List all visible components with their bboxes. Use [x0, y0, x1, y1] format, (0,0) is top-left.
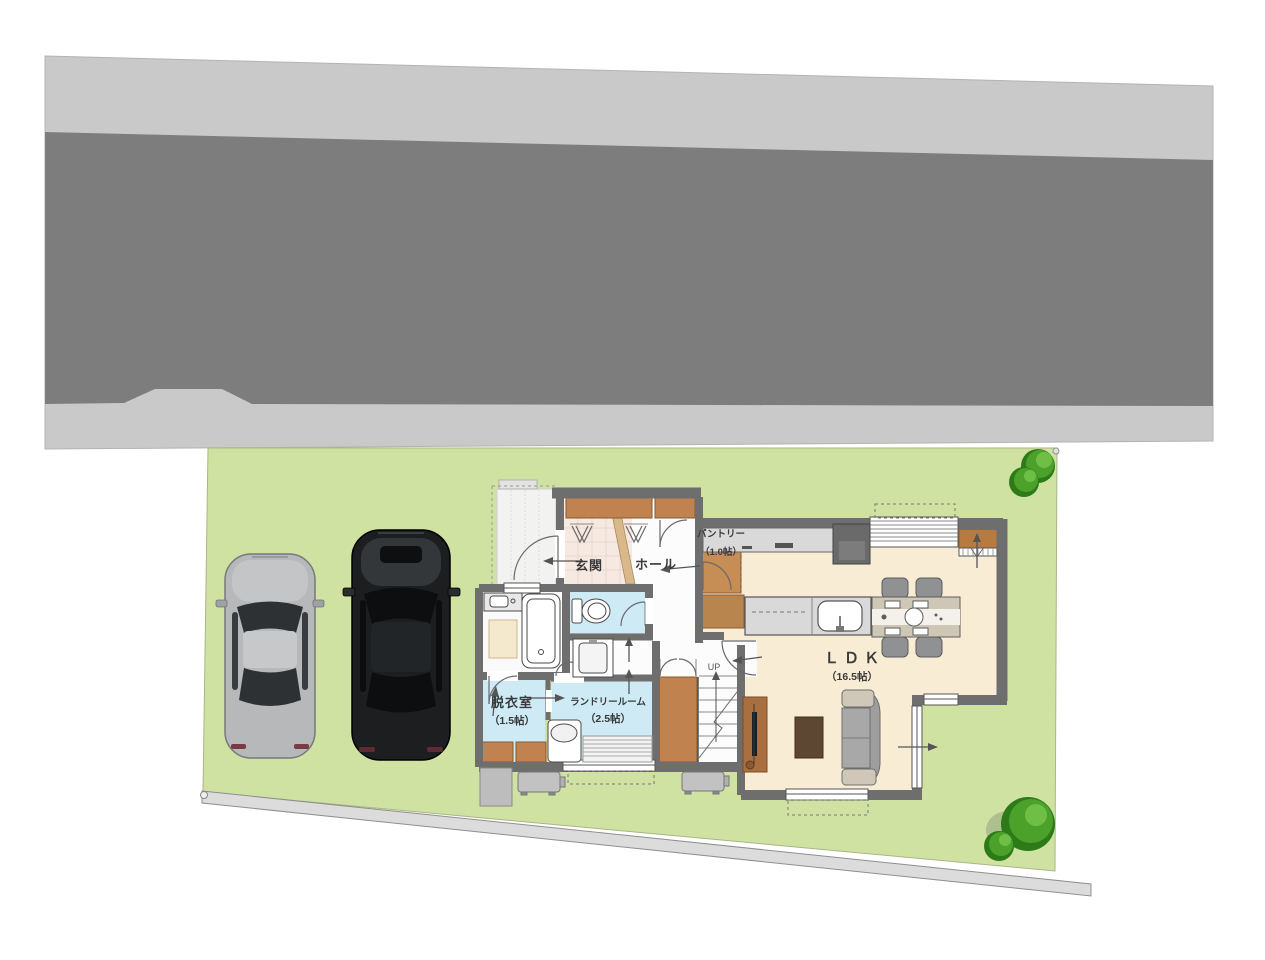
kitchen-island: [745, 597, 871, 635]
coffee-table: [795, 717, 823, 758]
pantry-size-label: （1.0帖）: [700, 546, 742, 558]
silver-car: [216, 554, 324, 758]
pantry-label: パントリー: [697, 528, 745, 540]
floor-plan-drawing: 玄関 ホール パントリー （1.0帖） ＬＤＫ （16.5帖） 脱衣室 （1.5…: [0, 0, 1265, 960]
genkan-label: 玄関: [575, 558, 603, 573]
road: [45, 56, 1213, 449]
shoe-closet: [566, 497, 652, 518]
laundry-deck-slats: [583, 736, 652, 762]
bath-mat: [489, 620, 517, 658]
black-car: [343, 530, 460, 760]
dining-chair: [882, 637, 908, 657]
dining-chair: [916, 578, 942, 598]
laundry-room-label: ランドリールーム: [570, 697, 646, 708]
dressing-room-size-label: （1.5帖）: [489, 714, 535, 727]
sofa: [842, 690, 880, 785]
dressing-room-label: 脱衣室: [491, 695, 533, 710]
dressing-cabinet: [482, 742, 513, 762]
toilet: [572, 599, 610, 623]
speaker: [746, 761, 754, 769]
fence-end-cap: [201, 792, 208, 799]
bathtub: [522, 594, 560, 668]
ldk-label: ＬＤＫ: [824, 650, 884, 667]
bath-window: [504, 583, 540, 593]
kitchen-louver-window: [870, 517, 958, 547]
ac-outdoor-unit: [518, 772, 565, 795]
hall-label: ホール: [635, 557, 677, 572]
bath-counter: [484, 593, 522, 611]
ldk-bottom-window: [786, 789, 868, 800]
entrance-porch: [492, 480, 556, 585]
ldk-size-label: （16.5帖）: [826, 670, 878, 683]
stairs-up-label: UP: [708, 662, 721, 672]
bathroom: [484, 593, 560, 668]
vanity: [573, 639, 613, 677]
utility-pad: [480, 768, 512, 806]
tv-board: [743, 697, 767, 772]
road-pavement: [45, 132, 1213, 406]
dressing-cabinet: [516, 742, 546, 762]
dining-chair: [882, 578, 908, 598]
kitchen-side-cabinet: [701, 595, 744, 628]
washing-machine: [548, 720, 581, 762]
ldk-corner-window: [924, 694, 958, 705]
laundry-room-size-label: （2.5帖）: [585, 712, 631, 725]
site-plan-canvas: 玄関 ホール パントリー （1.0帖） ＬＤＫ （16.5帖） 脱衣室 （1.5…: [0, 0, 1265, 960]
ac-outdoor-unit: [682, 772, 729, 794]
boundary-pole: [1053, 448, 1059, 454]
stairs-closet: [658, 677, 697, 762]
dining-chair: [916, 637, 942, 657]
